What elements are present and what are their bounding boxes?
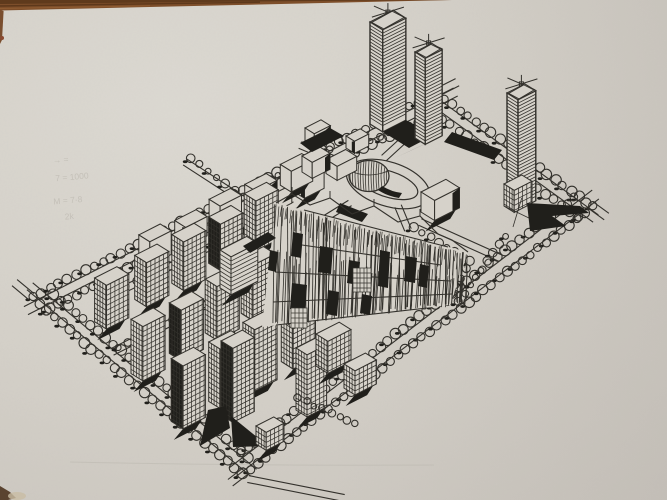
svg-text:→ ≈: → ≈	[52, 154, 69, 165]
svg-text:2k: 2k	[64, 211, 75, 222]
